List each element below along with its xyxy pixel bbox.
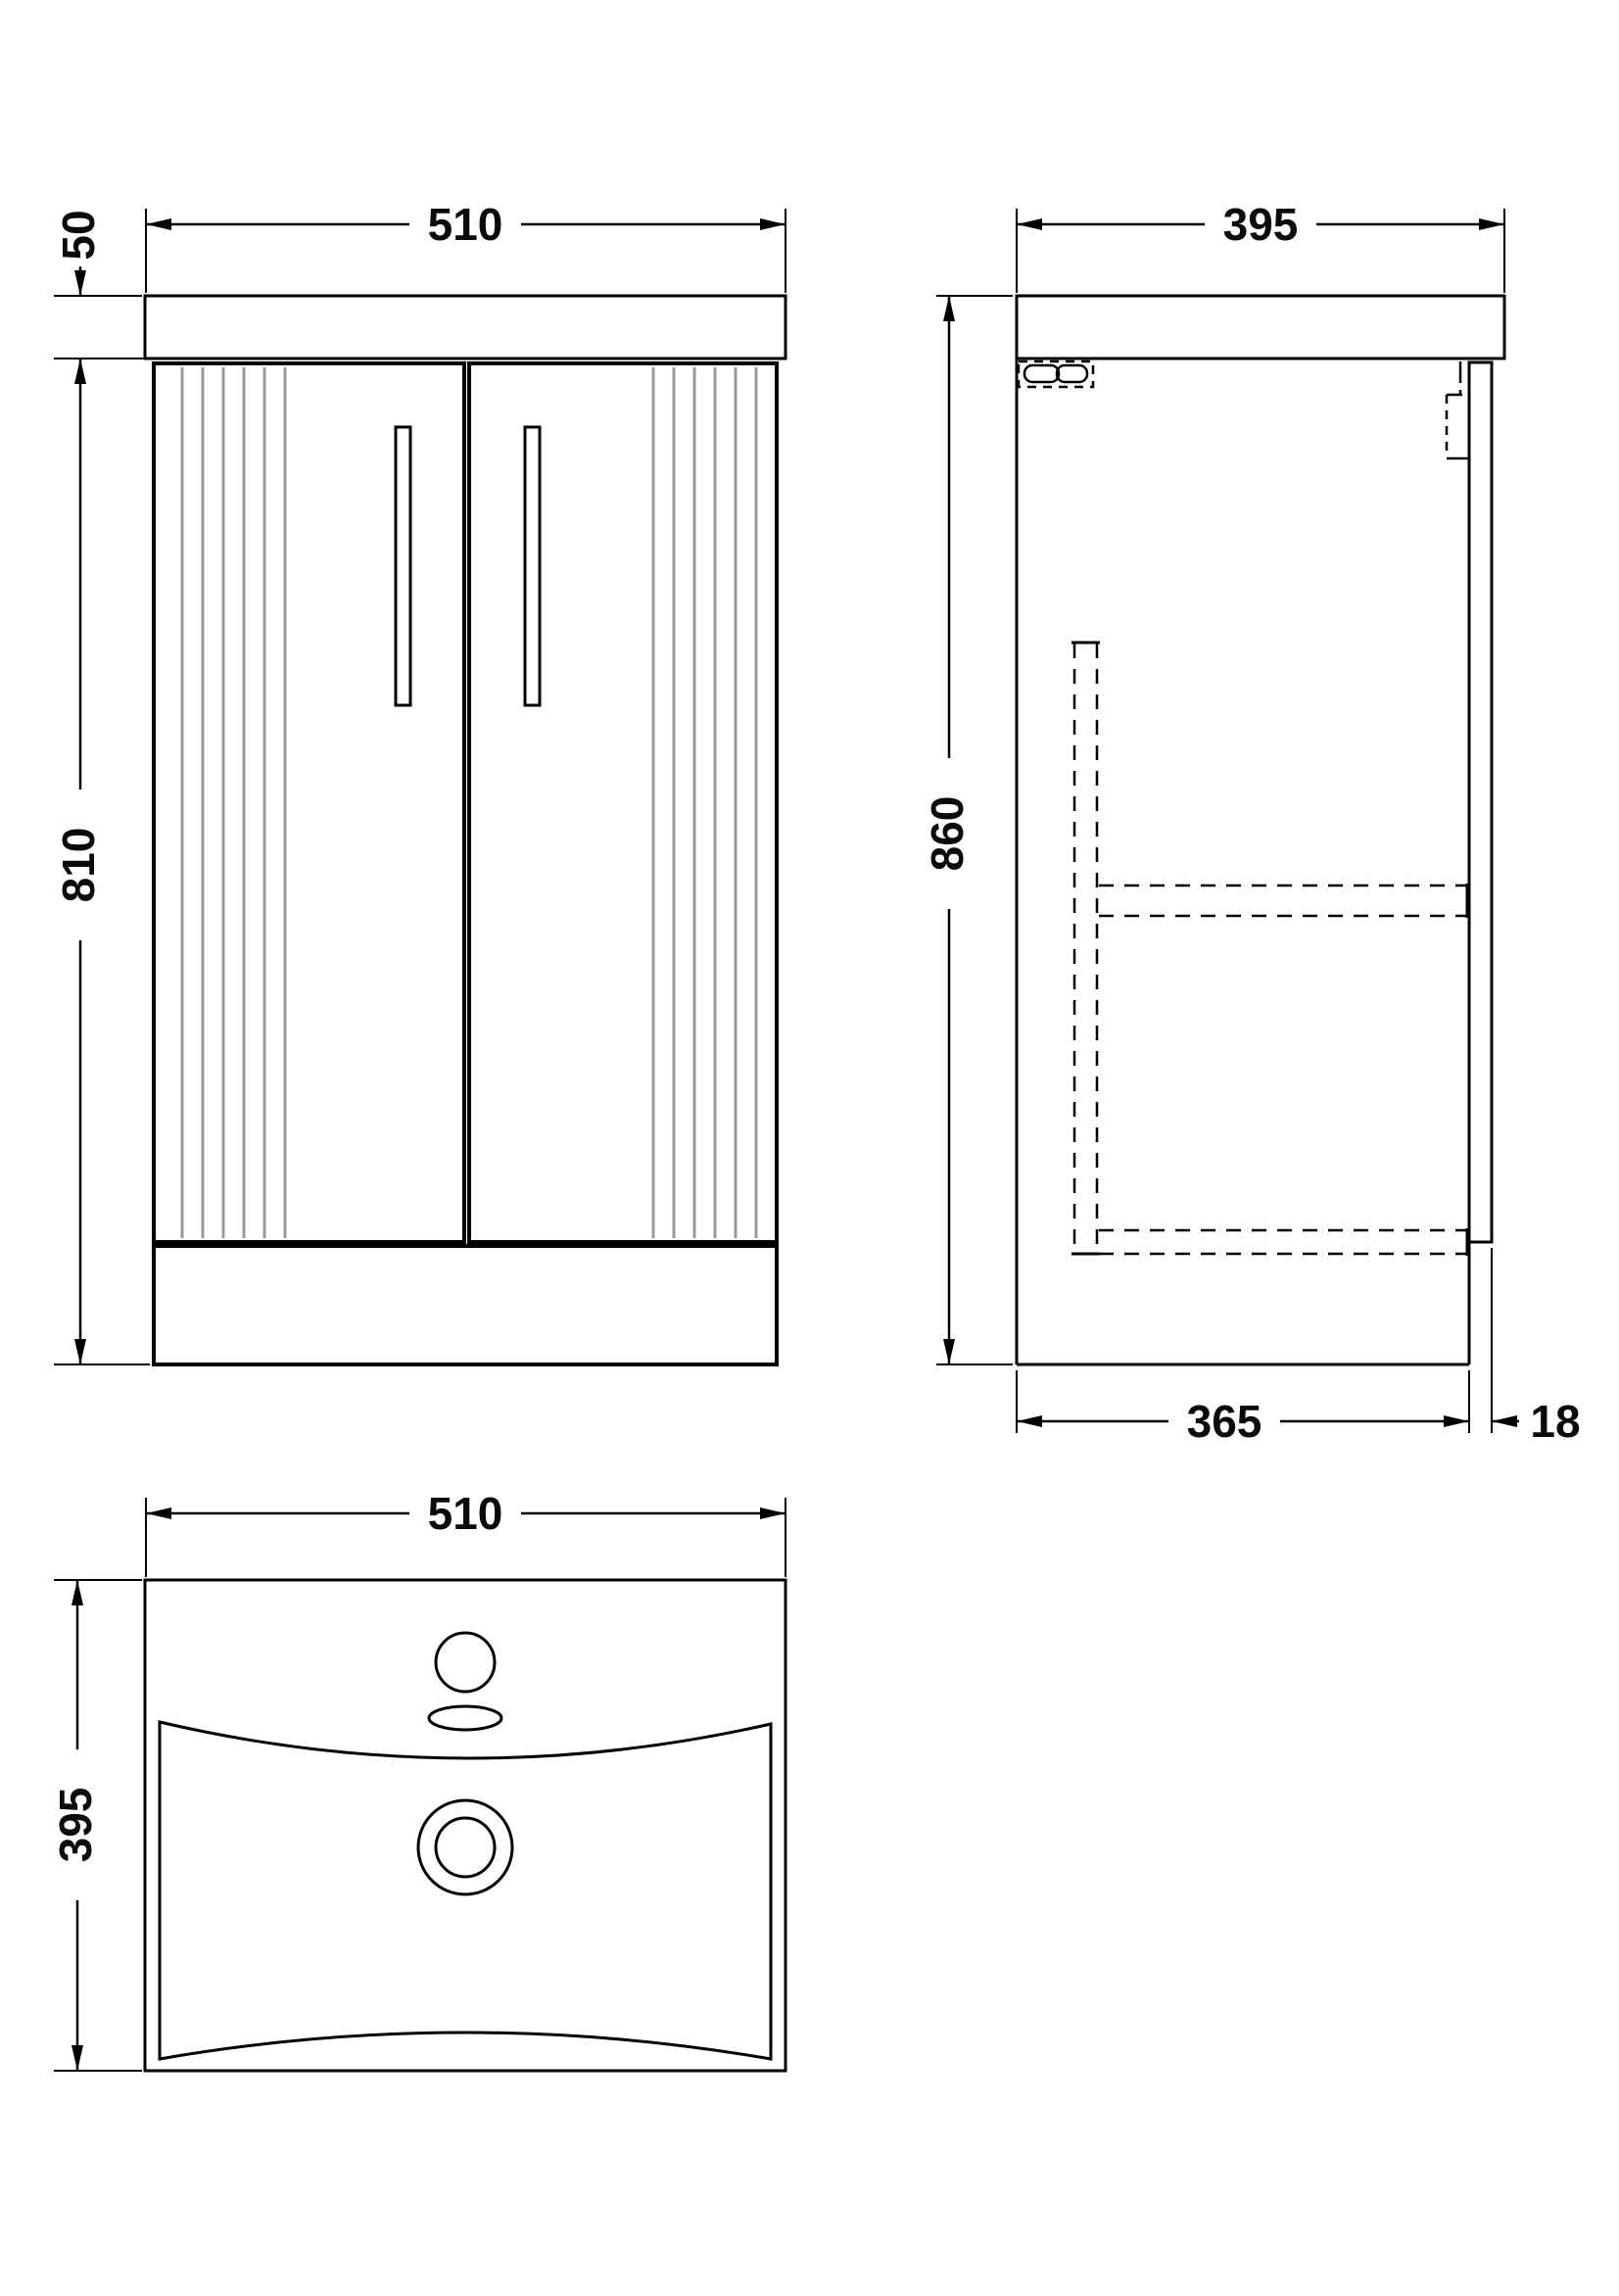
side-height-dimension: 860 — [922, 296, 1013, 1364]
arrowhead — [71, 2045, 83, 2071]
dimension-label: 395 — [50, 1788, 101, 1863]
arrowhead — [146, 218, 171, 230]
arrowhead — [943, 1339, 955, 1364]
drawing-canvas: 510 50 810 — [0, 0, 1619, 2291]
arrowhead — [943, 296, 955, 321]
dimension-label: 510 — [428, 1488, 503, 1539]
dimension-label: 395 — [1223, 199, 1299, 250]
side-back-panel-channel — [1071, 643, 1100, 1254]
drawing-sheet: 510 50 810 — [0, 0, 1619, 2291]
arrowhead — [1017, 1415, 1042, 1427]
plan-overflow-slot — [429, 1706, 501, 1730]
side-bottom-shelf-hidden — [1099, 1228, 1467, 1256]
arrowhead — [1492, 1415, 1517, 1427]
front-width-dimension: 510 — [146, 198, 786, 293]
dimension-label: 18 — [1530, 1396, 1580, 1447]
arrowhead — [1479, 218, 1504, 230]
side-view: 395 860 365 18 — [922, 198, 1581, 1447]
side-door — [1469, 362, 1492, 1242]
dimension-label: 365 — [1187, 1396, 1262, 1447]
dimension-label: 510 — [428, 199, 503, 250]
plan-basin-outline — [145, 1580, 786, 2071]
arrowhead — [74, 1339, 86, 1364]
front-left-door — [154, 363, 464, 1242]
plan-tap-hole — [436, 1633, 495, 1692]
plan-width-dimension: 510 — [146, 1487, 786, 1577]
side-depth-dimension: 395 — [1017, 198, 1504, 293]
arrowhead — [1444, 1415, 1469, 1427]
arrowhead — [760, 218, 786, 230]
side-carcass-depth-dimension: 365 — [1017, 1248, 1492, 1447]
plan-depth-dimension: 395 — [50, 1580, 142, 2071]
side-worktop — [1017, 296, 1504, 359]
dimension-label: 860 — [922, 796, 973, 872]
front-worktop — [145, 296, 786, 359]
plan-waste-outer — [418, 1800, 512, 1894]
front-right-door-handle — [525, 427, 540, 705]
side-door-thickness-dimension: 18 — [1492, 1396, 1581, 1447]
front-worktop-height-dimension: 50 — [53, 204, 150, 384]
plan-waste-inner — [436, 1818, 495, 1877]
dimension-label: 50 — [53, 210, 104, 260]
arrowhead — [146, 1507, 171, 1519]
side-top-hinge-bracket — [1447, 361, 1469, 458]
plan-basin-bowl — [160, 1722, 771, 2059]
front-cabinet-height-dimension: 810 — [53, 359, 150, 1364]
arrowhead — [71, 1580, 83, 1605]
hinge-pill — [1024, 365, 1059, 382]
plan-view: 510 395 — [50, 1487, 786, 2071]
arrowhead — [74, 270, 86, 296]
dimension-label: 810 — [53, 828, 104, 903]
side-hinge-detail — [1019, 361, 1093, 387]
hinge-pill — [1057, 365, 1087, 382]
front-plinth — [154, 1246, 777, 1364]
front-right-door — [469, 363, 777, 1242]
front-view: 510 50 810 — [53, 198, 786, 1364]
side-middle-shelf-hidden — [1099, 884, 1467, 918]
front-left-door-handle — [396, 427, 410, 705]
arrowhead — [1017, 218, 1042, 230]
arrowhead — [760, 1507, 786, 1519]
